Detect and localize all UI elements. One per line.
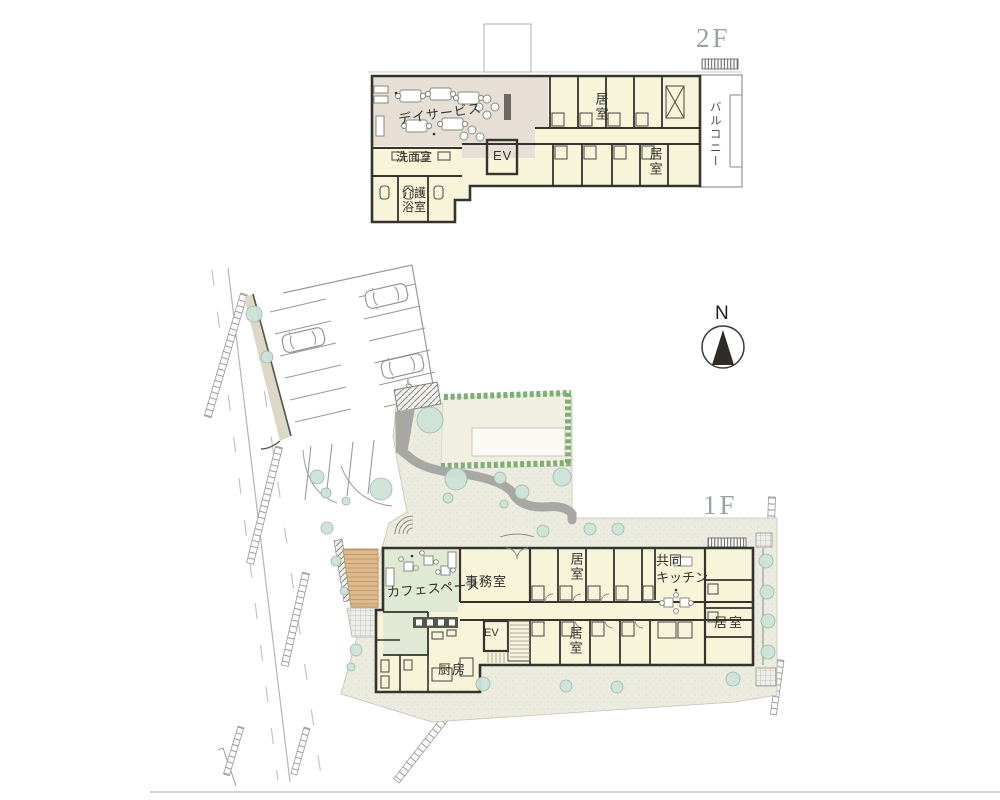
north-compass bbox=[702, 326, 744, 368]
plan-drawing: ♿ bbox=[0, 0, 1000, 800]
car-icon bbox=[364, 281, 410, 312]
room1f-lower-label: 居室 bbox=[567, 626, 583, 656]
room1f-upper-label: 居室 bbox=[568, 552, 584, 582]
balcony-label: バルコニー bbox=[707, 101, 721, 169]
carebath-label: 介護 浴室 bbox=[399, 186, 429, 215]
floor1-label: 1F bbox=[703, 489, 738, 521]
shared-kitchen-label: 共同 キッチン bbox=[656, 553, 708, 587]
room2f-lower-label: 居室 bbox=[647, 147, 663, 177]
office-label: 事務室 bbox=[465, 574, 507, 590]
roof-outline bbox=[484, 24, 531, 72]
piano bbox=[504, 94, 511, 120]
site-plan: ♿ bbox=[0, 0, 1000, 800]
car-icon bbox=[380, 351, 426, 382]
elevator2f-label: EV bbox=[493, 148, 512, 164]
room2f-upper-label: 居室 bbox=[593, 92, 609, 122]
room1f-right-label: 居室 bbox=[714, 615, 744, 631]
elevator1f-label: EV bbox=[484, 627, 499, 640]
planter bbox=[472, 428, 565, 456]
kitchen-label: 厨房 bbox=[438, 662, 466, 678]
floor2-label: 2F bbox=[696, 22, 731, 54]
porch-railing bbox=[708, 538, 746, 547]
washroom-label: 洗面室 bbox=[396, 150, 432, 164]
balcony-railing bbox=[702, 59, 738, 69]
north-label: N bbox=[715, 303, 729, 326]
cars bbox=[281, 281, 426, 382]
tile-plaza bbox=[347, 608, 377, 637]
